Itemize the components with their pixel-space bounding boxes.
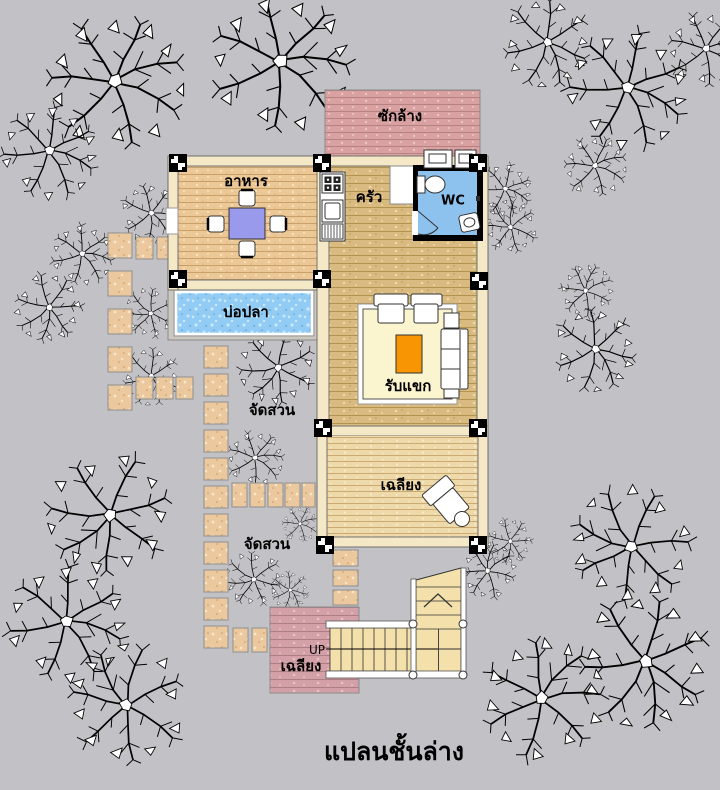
column-icon [470,272,488,290]
column-icon [469,419,487,437]
washing-machines [424,150,476,168]
tree-icon [0,85,115,218]
column-icon [469,536,487,554]
pond-water [176,292,312,334]
tree-icon [60,636,195,774]
chair [208,216,224,232]
chair [239,190,255,206]
chair [270,216,286,232]
wall [478,426,488,547]
cabinet [390,166,414,204]
tree-icon [548,301,642,397]
stepping-stone [232,483,247,507]
stepping-stone [302,483,315,507]
kitchen-counter [320,172,345,241]
column-icon [469,154,487,172]
tree-icon [46,16,183,149]
stepping-stone [136,237,153,259]
stepping-stone [333,570,358,586]
chair [239,241,255,257]
column-icon [313,154,331,172]
tree-icon [564,136,626,196]
stepping-stone [136,377,153,399]
stepping-stone [204,570,228,592]
living-set [358,294,468,404]
stepping-stone [204,430,228,452]
sofa [441,329,468,389]
stepping-stone [204,486,228,508]
fish-pond [168,286,317,340]
column-icon [316,536,334,554]
floor-plan-canvas: ซักล้าง อาหาร ครัว WC บ่อปลา รับแขก จัดส… [0,0,720,790]
column-icon [169,270,187,288]
stepping-stone [108,309,132,334]
washbasin-icon [458,212,480,233]
stepping-stone [108,347,132,372]
stepping-stone [156,377,173,399]
side-table [444,313,459,328]
toilet-icon [417,176,425,193]
floor-plan-svg [0,0,720,790]
side-table [455,512,470,527]
stepping-stone [204,598,228,620]
stepping-stone [252,628,267,652]
washer-icon [424,150,452,168]
wall [168,280,330,290]
tree-icon [550,254,623,328]
laundry-area [325,90,480,157]
tree-icon [662,6,720,92]
tree-icon [3,260,95,353]
stepping-stone [176,377,193,399]
stepping-stone [108,233,132,258]
stepping-stone [204,514,228,536]
wall [168,156,330,166]
window [166,208,178,234]
stepping-stone [204,402,228,424]
tree-icon [221,425,289,492]
tree-icon [0,541,148,705]
wall [317,537,488,547]
tree-icon [549,463,715,629]
door-opening [412,211,418,235]
coffee-table [396,335,422,373]
tree-icon [480,510,540,571]
column-icon [313,270,331,288]
stepping-stone [268,483,283,507]
stepping-stone [157,237,169,259]
wall [317,426,488,436]
stepping-stone [204,542,228,564]
stepping-stone [108,271,132,296]
tree-icon [222,547,286,610]
column-icon [169,154,187,172]
stepping-stone [285,483,300,507]
column-icon [314,419,332,437]
tree-icon [31,436,188,591]
upper-terrace [317,426,488,547]
tree-icon [570,585,719,738]
stepping-stone [204,626,228,648]
wall [317,426,327,547]
stepping-stone [250,483,265,507]
stepping-stone [204,458,228,480]
stepping-stone [204,346,228,368]
dining-table [229,208,265,239]
tree-icon [459,617,626,782]
tree-icon [282,507,318,542]
fixture-mark [476,196,480,201]
stepping-stone [108,385,132,410]
stepping-stone [204,374,228,396]
tree-icon [503,0,589,87]
stepping-stone [333,550,358,566]
stepping-stone [233,628,248,652]
stepping-stone [333,590,358,605]
